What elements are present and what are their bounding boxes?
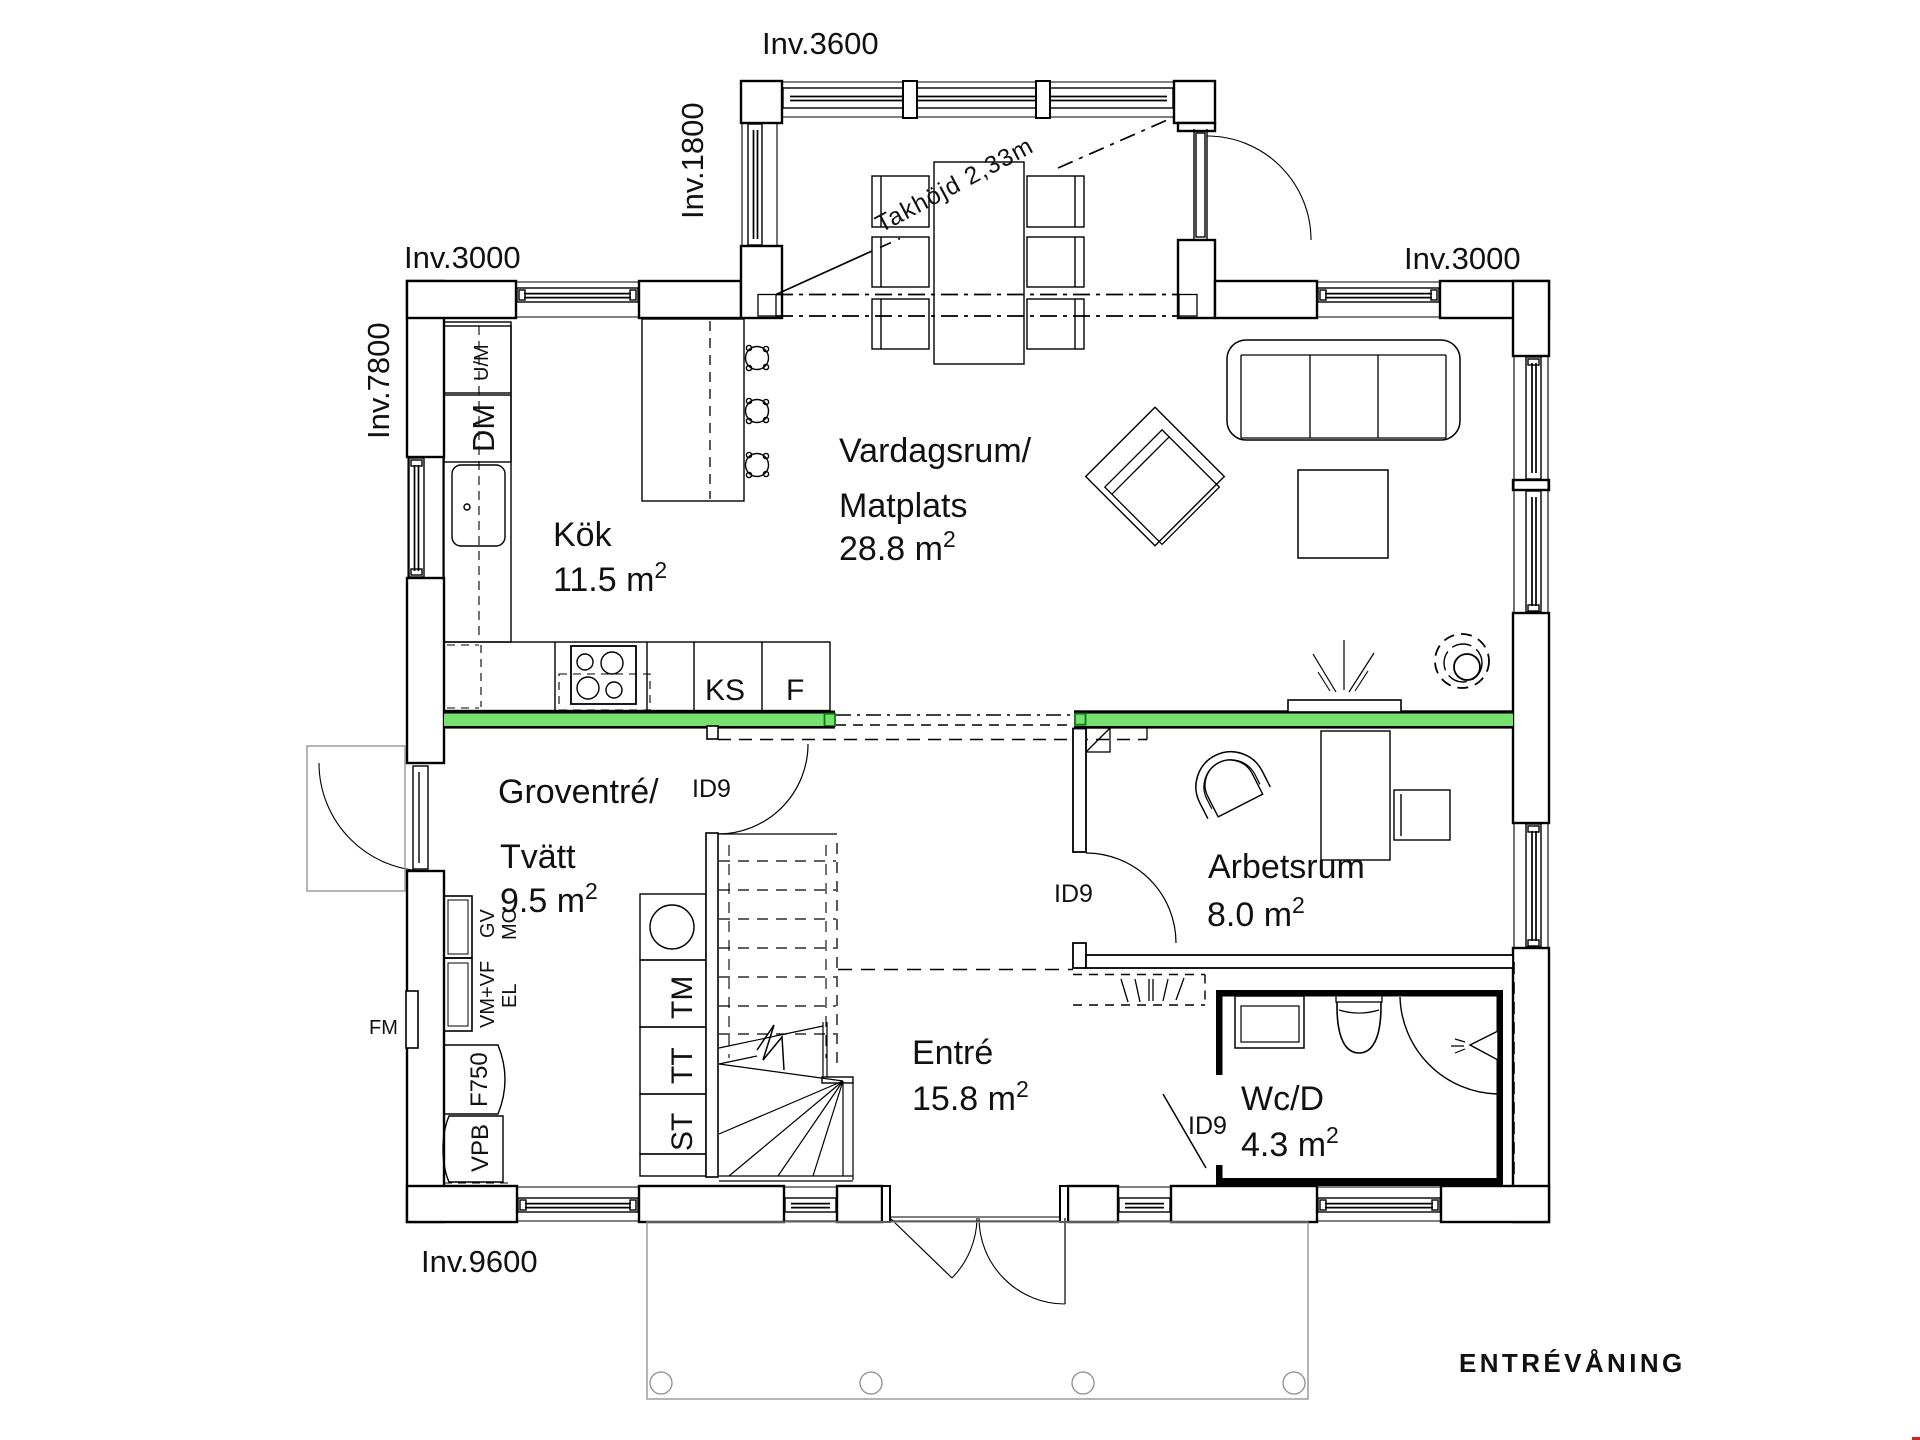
svg-text:Matplats: Matplats bbox=[839, 487, 968, 525]
svg-text:Inv.3000: Inv.3000 bbox=[1404, 241, 1521, 276]
svg-text:Inv.3000: Inv.3000 bbox=[404, 240, 521, 275]
svg-text:8.0 m2: 8.0 m2 bbox=[1207, 892, 1305, 934]
svg-text:DM: DM bbox=[466, 404, 501, 452]
svg-text:ID9: ID9 bbox=[1054, 880, 1093, 908]
svg-text:ST: ST bbox=[666, 1113, 699, 1151]
svg-text:Arbetsrum: Arbetsrum bbox=[1208, 848, 1365, 886]
svg-text:Wc/D: Wc/D bbox=[1241, 1080, 1324, 1118]
svg-text:11.5 m2: 11.5 m2 bbox=[553, 557, 667, 599]
svg-text:Kök: Kök bbox=[553, 516, 613, 554]
svg-text:Inv.9600: Inv.9600 bbox=[421, 1244, 538, 1279]
svg-text:15.8 m2: 15.8 m2 bbox=[912, 1076, 1029, 1118]
svg-text:Tvätt: Tvätt bbox=[500, 838, 576, 876]
svg-text:Entré: Entré bbox=[912, 1034, 993, 1072]
svg-text:MC: MC bbox=[499, 909, 521, 940]
svg-text:GV: GV bbox=[477, 908, 499, 938]
svg-text:F: F bbox=[786, 674, 804, 707]
svg-text:EL: EL bbox=[499, 984, 521, 1008]
svg-text:ID9: ID9 bbox=[1188, 1112, 1227, 1140]
svg-text:4.3 m2: 4.3 m2 bbox=[1241, 1122, 1339, 1164]
svg-text:VM+VF: VM+VF bbox=[477, 961, 499, 1028]
svg-text:FM: FM bbox=[369, 1017, 398, 1039]
svg-text:Groventré/: Groventré/ bbox=[498, 773, 659, 811]
svg-text:KS: KS bbox=[705, 674, 745, 707]
svg-text:Vardagsrum/: Vardagsrum/ bbox=[839, 432, 1032, 470]
svg-text:ENTRÉVÅNING: ENTRÉVÅNING bbox=[1459, 1348, 1686, 1378]
svg-text:F750: F750 bbox=[466, 1052, 493, 1107]
svg-text:Inv.7800: Inv.7800 bbox=[361, 322, 396, 439]
svg-text:TT: TT bbox=[666, 1047, 699, 1084]
svg-text:Inv.1800: Inv.1800 bbox=[675, 102, 710, 219]
svg-text:TM: TM bbox=[666, 976, 699, 1019]
svg-text:U/M: U/M bbox=[471, 344, 493, 381]
svg-text:Inv.3600: Inv.3600 bbox=[762, 26, 879, 61]
svg-text:VPB: VPB bbox=[467, 1124, 494, 1172]
svg-text:28.8 m2: 28.8 m2 bbox=[839, 526, 956, 568]
svg-text:ID9: ID9 bbox=[692, 775, 731, 803]
